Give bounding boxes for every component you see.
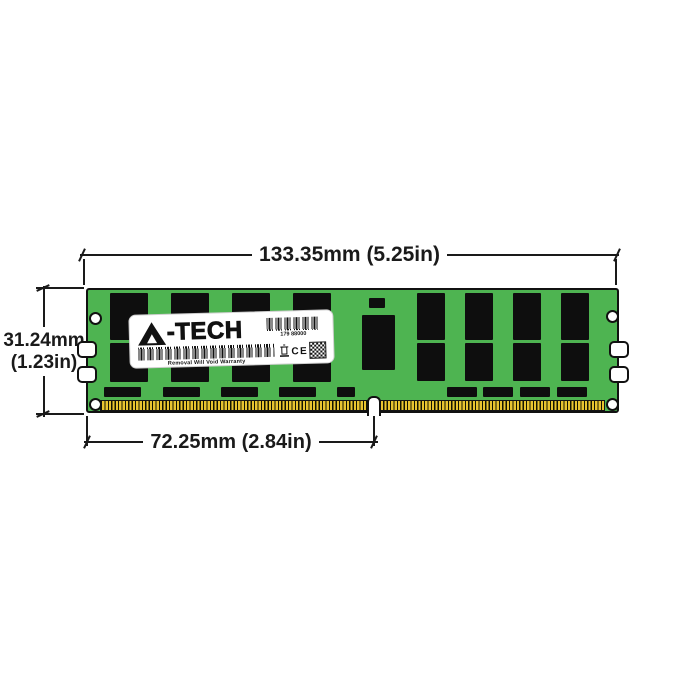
memory-chip (465, 293, 493, 340)
extension-line (373, 416, 375, 446)
dimension-line (319, 441, 378, 443)
product-label: -TECH 179 88000 Removal Will Void Warran… (128, 309, 334, 369)
dimension-line (43, 286, 45, 327)
memory-module-board: -TECH 179 88000 Removal Will Void Warran… (86, 288, 619, 413)
memory-chip (561, 343, 589, 381)
edge-notch (609, 366, 629, 383)
weee-bin-icon (279, 343, 289, 357)
dimension-line (80, 254, 252, 256)
atech-logo: -TECH (137, 317, 243, 348)
height-mm: 31.24mm (3, 330, 84, 351)
dimension-line (84, 441, 143, 443)
logo-a-triangle-inner (147, 334, 157, 343)
screw-hole (89, 312, 102, 325)
dimension-line (447, 254, 619, 256)
memory-chip (163, 387, 200, 397)
edge-notch (77, 341, 97, 358)
memory-chip (557, 387, 587, 397)
memory-chip (561, 293, 589, 340)
width-dimension: 133.35mm (5.25in) (80, 243, 619, 267)
extension-line (36, 413, 84, 415)
memory-chip (369, 298, 385, 308)
memory-chip (483, 387, 513, 397)
memory-chip (465, 343, 493, 381)
logo-text: -TECH (166, 317, 243, 347)
edge-notch (77, 366, 97, 383)
ce-mark: CE (291, 346, 308, 357)
extension-line (36, 287, 84, 289)
memory-chip (337, 387, 355, 397)
height-dimension: 31.24mm (1.23in) (8, 286, 80, 417)
pin-span-dimension: 72.25mm (2.84in) (84, 430, 378, 454)
memory-chip (279, 387, 316, 397)
barcode-icon (266, 317, 319, 331)
screw-hole (606, 398, 619, 411)
extension-line (83, 259, 85, 285)
qr-code-icon (309, 341, 326, 358)
memory-chip (104, 387, 141, 397)
edge-notch (609, 341, 629, 358)
memory-chip (447, 387, 477, 397)
memory-chip (221, 387, 258, 397)
pin-span-dimension-label: 72.25mm (2.84in) (150, 431, 311, 454)
screw-hole (606, 310, 619, 323)
height-in: (1.23in) (3, 352, 84, 373)
memory-chip (513, 293, 541, 340)
key-notch (367, 396, 381, 416)
memory-chip (520, 387, 550, 397)
width-dimension-label: 133.35mm (5.25in) (259, 243, 440, 267)
screw-hole (89, 398, 102, 411)
extension-line (86, 416, 88, 446)
memory-chip (417, 293, 445, 340)
logo-a-triangle-icon (137, 321, 166, 345)
serial-number: 179 88000 (265, 330, 322, 338)
product-dimension-diagram: 133.35mm (5.25in) 31.24mm (1.23in) 72.25… (0, 0, 700, 700)
height-dimension-label: 31.24mm (1.23in) (3, 330, 84, 373)
memory-chip (513, 343, 541, 381)
memory-chip (417, 343, 445, 381)
memory-chip (362, 315, 395, 370)
extension-line (615, 259, 617, 285)
